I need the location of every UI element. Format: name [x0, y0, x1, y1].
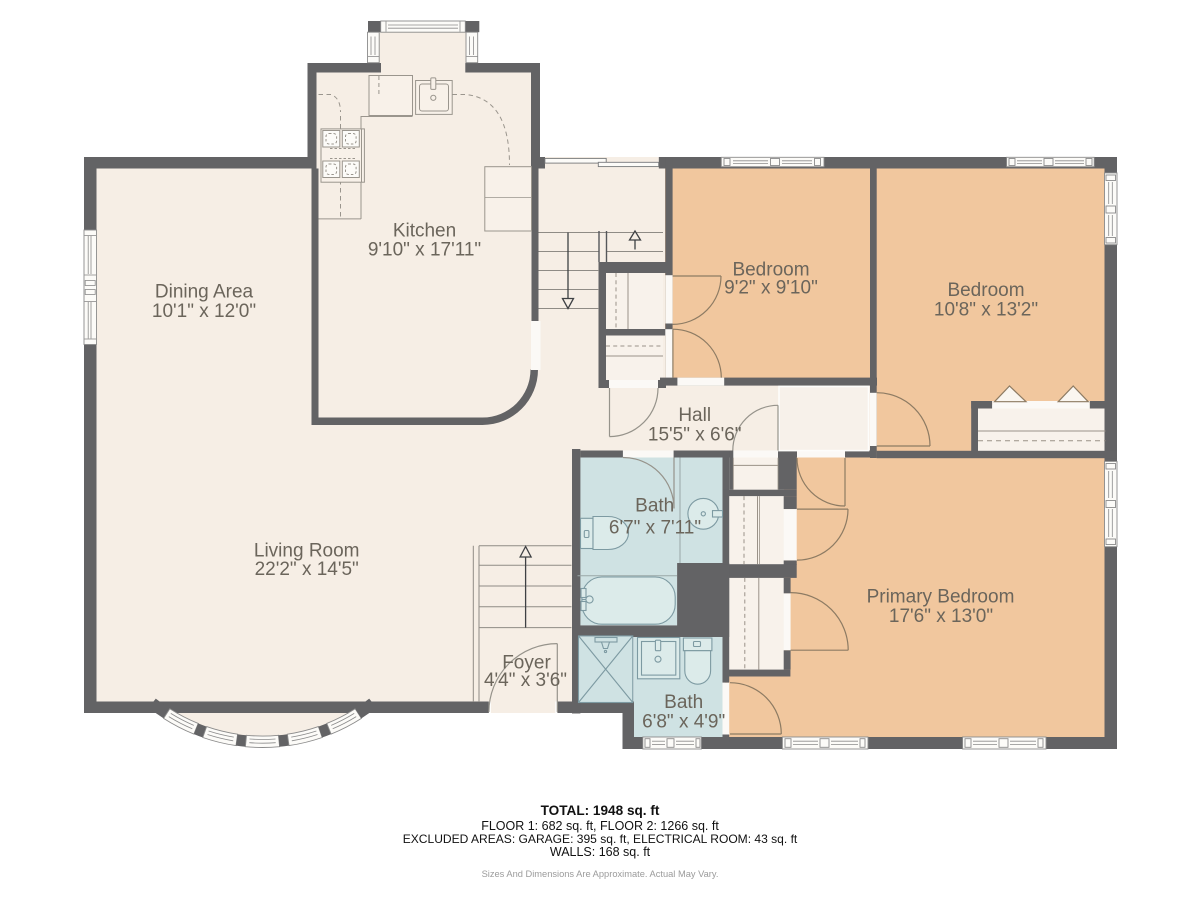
svg-text:Primary Bedroom: Primary Bedroom [867, 587, 1015, 608]
svg-text:9'10" x 17'11": 9'10" x 17'11" [368, 240, 481, 261]
svg-text:Bath: Bath [664, 692, 703, 713]
svg-text:10'8" x 13'2": 10'8" x 13'2" [934, 299, 1038, 320]
svg-text:17'6" x 13'0": 17'6" x 13'0" [889, 606, 993, 627]
svg-text:Bedroom: Bedroom [947, 280, 1024, 301]
svg-text:FLOOR 1: 682 sq. ft, FLOOR 2:: FLOOR 1: 682 sq. ft, FLOOR 2: 1266 sq. f… [481, 819, 719, 833]
svg-text:6'7" x 7'11": 6'7" x 7'11" [609, 517, 701, 538]
svg-text:15'5" x 6'6": 15'5" x 6'6" [648, 425, 742, 446]
svg-text:Hall: Hall [678, 405, 711, 426]
svg-text:6'8" x 4'9": 6'8" x 4'9" [642, 711, 725, 732]
svg-text:22'2" x 14'5": 22'2" x 14'5" [255, 559, 359, 580]
svg-text:EXCLUDED AREAS: GARAGE: 395 sq: EXCLUDED AREAS: GARAGE: 395 sq. ft, ELEC… [403, 832, 798, 846]
svg-text:Bath: Bath [635, 495, 674, 516]
svg-text:WALLS: 168 sq. ft: WALLS: 168 sq. ft [550, 845, 651, 859]
svg-text:Living Room: Living Room [254, 540, 360, 561]
svg-text:TOTAL: 1948 sq. ft: TOTAL: 1948 sq. ft [541, 803, 660, 818]
svg-text:Kitchen: Kitchen [393, 220, 456, 241]
svg-text:9'2" x 9'10": 9'2" x 9'10" [724, 278, 818, 299]
svg-text:Sizes And Dimensions Are Appro: Sizes And Dimensions Are Approximate. Ac… [482, 869, 719, 879]
svg-text:10'1" x 12'0": 10'1" x 12'0" [152, 301, 256, 322]
svg-text:Dining Area: Dining Area [155, 282, 254, 303]
svg-text:4'4" x 3'6": 4'4" x 3'6" [484, 670, 567, 691]
